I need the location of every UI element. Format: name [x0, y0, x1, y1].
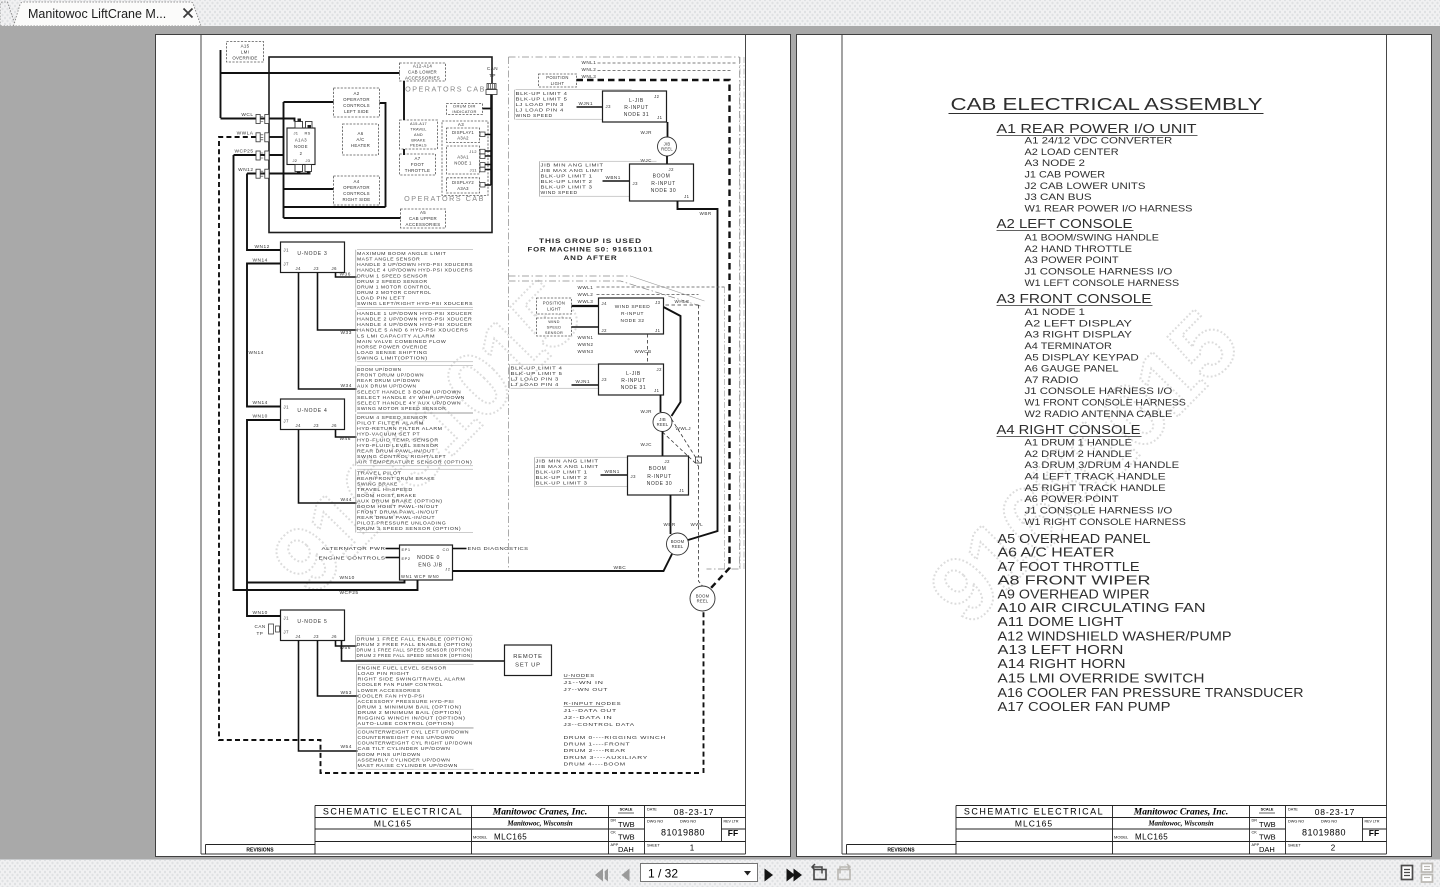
- svg-text:TRAVEL: TRAVEL: [410, 128, 426, 132]
- svg-text:MLC165: MLC165: [494, 833, 527, 842]
- svg-text:A5 RIGHT TRACK HANDLE: A5 RIGHT TRACK HANDLE: [1024, 482, 1165, 493]
- svg-text:CAB LOWER: CAB LOWER: [407, 70, 436, 75]
- svg-text:R-INPUT: R-INPUT: [621, 311, 644, 317]
- svg-text:J2: J2: [601, 328, 607, 333]
- svg-text:J6: J6: [331, 266, 337, 271]
- svg-text:08-23-17: 08-23-17: [1314, 807, 1354, 817]
- svg-text:WWL: WWL: [690, 522, 703, 527]
- svg-text:REEL: REEL: [696, 599, 708, 604]
- svg-text:FRONT DRUM PAWL-IN/OUT: FRONT DRUM PAWL-IN/OUT: [357, 510, 439, 515]
- svg-text:NODE 30: NODE 30: [646, 481, 672, 487]
- svg-text:WBR: WBR: [699, 211, 711, 216]
- svg-text:2: 2: [1330, 844, 1335, 853]
- svg-text:LOAD SENSE SHIFTING: LOAD SENSE SHIFTING: [357, 350, 428, 355]
- svg-text:SELECT HANDLE 4Y WHIP UP/DOWN: SELECT HANDLE 4Y WHIP UP/DOWN: [357, 395, 465, 400]
- svg-text:WJN1: WJN1: [578, 101, 593, 106]
- svg-text:AIR TEMPERATURE SENSOR (OPTION: AIR TEMPERATURE SENSOR (OPTION): [357, 460, 472, 465]
- svg-text:SCALE: SCALE: [619, 808, 632, 812]
- svg-text:Manitowoc LiftCrane M...: Manitowoc LiftCrane M...: [28, 7, 166, 21]
- svg-text:R-INPUT: R-INPUT: [651, 181, 675, 187]
- svg-text:JIB MAX ANG LIMIT: JIB MAX ANG LIMIT: [540, 168, 603, 173]
- svg-text:A8 FRONT WIPER: A8 FRONT WIPER: [997, 573, 1150, 587]
- svg-text:BOOM HOIST PAWL-IN/OUT: BOOM HOIST PAWL-IN/OUT: [357, 504, 439, 509]
- svg-text:J1: J1: [655, 328, 661, 333]
- svg-text:A15-A17: A15-A17: [410, 122, 427, 126]
- svg-text:ENG J/B: ENG J/B: [418, 563, 442, 569]
- svg-text:ENGINE CONTROLS: ENGINE CONTROLS: [318, 556, 385, 562]
- svg-text:J1 CONSOLE HARNESS I/O: J1 CONSOLE HARNESS I/O: [1024, 266, 1172, 277]
- svg-text:POSITION: POSITION: [542, 301, 564, 306]
- svg-text:CO: CO: [442, 547, 449, 552]
- svg-text:J1 CONSOLE HARNESS I/O: J1 CONSOLE HARNESS I/O: [1024, 505, 1172, 516]
- svg-text:W53: W53: [340, 690, 351, 696]
- svg-text:LEFT SIDE: LEFT SIDE: [344, 109, 369, 114]
- svg-text:A12-A14: A12-A14: [412, 64, 431, 69]
- svg-text:BLK-UP LIMIT 4: BLK-UP LIMIT 4: [515, 91, 567, 96]
- svg-text:OPERATOR: OPERATOR: [343, 97, 370, 102]
- svg-text:AND: AND: [414, 133, 423, 137]
- svg-text:J3: J3: [305, 158, 310, 163]
- svg-text:J4: J4: [295, 266, 301, 271]
- svg-text:BOOM HOIST BRAKE: BOOM HOIST BRAKE: [357, 493, 417, 498]
- svg-text:SCHEMATIC ELECTRICAL: SCHEMATIC ELECTRICAL: [322, 807, 462, 817]
- svg-text:A3A1: A3A1: [457, 155, 469, 160]
- svg-text:A3: A3: [457, 122, 463, 127]
- svg-text:WIND SPEED: WIND SPEED: [540, 190, 577, 195]
- svg-text:MAIN VALVE COMBINED FLOW: MAIN VALVE COMBINED FLOW: [357, 339, 447, 344]
- svg-text:2: 2: [299, 151, 302, 156]
- svg-text:TWB: TWB: [618, 820, 635, 829]
- svg-text:J2: J2: [664, 459, 670, 464]
- svg-text:CK: CK: [1251, 831, 1257, 835]
- svg-text:A3A3: A3A3: [457, 186, 469, 191]
- svg-text:J1: J1: [293, 131, 298, 136]
- svg-text:TP: TP: [489, 73, 496, 78]
- svg-text:A7 FOOT THROTTLE: A7 FOOT THROTTLE: [997, 560, 1139, 574]
- svg-text:PILOT PRESSURE UNLOADING: PILOT PRESSURE UNLOADING: [357, 521, 447, 526]
- svg-text:EP1: EP1: [401, 547, 410, 552]
- svg-text:WIND SPEED: WIND SPEED: [614, 304, 649, 310]
- svg-text:A5 OVERHEAD PANEL: A5 OVERHEAD PANEL: [997, 532, 1150, 546]
- svg-text:HANDLE 5 AND 6 HYD-PSI XDUCERS: HANDLE 5 AND 6 HYD-PSI XDUCERS: [357, 328, 469, 333]
- svg-text:DR: DR: [1251, 819, 1257, 823]
- svg-text:A7: A7: [414, 156, 420, 161]
- svg-text:A13 LEFT HORN: A13 LEFT HORN: [997, 643, 1123, 657]
- svg-text:CONTROLS: CONTROLS: [343, 103, 370, 108]
- svg-text:THROTTLE: THROTTLE: [404, 168, 430, 173]
- svg-text:BLK-UP LIMIT 4: BLK-UP LIMIT 4: [510, 365, 562, 370]
- svg-text:WN14: WN14: [248, 350, 263, 356]
- svg-text:J3: J3: [630, 474, 636, 479]
- svg-text:U-NODE 5: U-NODE 5: [297, 619, 327, 625]
- svg-text:A14 RIGHT HORN: A14 RIGHT HORN: [997, 657, 1125, 671]
- svg-text:A2 LOAD CENTER: A2 LOAD CENTER: [1024, 146, 1118, 157]
- svg-text:OPERATORS CAB: OPERATORS CAB: [405, 85, 486, 94]
- svg-text:LMI: LMI: [240, 49, 248, 54]
- svg-text:Manitowoc Cranes, Inc.: Manitowoc Cranes, Inc.: [1132, 808, 1228, 818]
- svg-text:W33: W33: [340, 330, 351, 336]
- svg-text:REVISIONS: REVISIONS: [887, 848, 915, 854]
- svg-text:SCALE: SCALE: [1260, 808, 1273, 812]
- svg-text:WJR: WJR: [640, 409, 652, 414]
- svg-text:A6 GAUGE PANEL: A6 GAUGE PANEL: [1024, 363, 1118, 374]
- svg-text:WN14: WN14: [252, 400, 267, 406]
- svg-text:BOOM: BOOM: [648, 466, 666, 472]
- svg-text:BLK-UP LIMIT 5: BLK-UP LIMIT 5: [515, 96, 567, 101]
- svg-text:J2: J2: [656, 367, 662, 372]
- svg-text:A11 DOME LIGHT: A11 DOME LIGHT: [997, 615, 1123, 629]
- svg-text:CAN: CAN: [486, 66, 497, 71]
- svg-text:MODEL: MODEL: [1114, 835, 1129, 840]
- svg-text:DISPLAY2: DISPLAY2: [451, 180, 473, 185]
- svg-text:A2 HAND THROTTLE: A2 HAND THROTTLE: [1024, 243, 1132, 254]
- svg-text:ASSEMBLY CYLINDER UP/DOWN: ASSEMBLY CYLINDER UP/DOWN: [357, 757, 450, 762]
- svg-text:J3--CONTROL DATA: J3--CONTROL DATA: [563, 722, 635, 727]
- svg-text:DRUM 1 FREE FALL ENABLE (OPTIO: DRUM 1 FREE FALL ENABLE (OPTION): [356, 637, 472, 642]
- svg-text:HYD-FLUID TEMP. SENSOR: HYD-FLUID TEMP. SENSOR: [357, 437, 439, 442]
- svg-text:A3 POWER POINT: A3 POWER POINT: [1024, 254, 1118, 265]
- svg-text:WBN1: WBN1: [604, 469, 619, 474]
- svg-text:A1 24/12 VDC CONVERTER: A1 24/12 VDC CONVERTER: [1024, 135, 1172, 146]
- svg-text:DRUM 3 SPEED SENSOR (OPTION): DRUM 3 SPEED SENSOR (OPTION): [357, 526, 461, 531]
- svg-text:DRUM 4----BOOM: DRUM 4----BOOM: [563, 761, 625, 766]
- svg-text:ACCESSORY PRESSURE HYD-PSI: ACCESSORY PRESSURE HYD-PSI: [357, 699, 454, 704]
- svg-text:AUTO-LUBE CONTROL (OPTION): AUTO-LUBE CONTROL (OPTION): [357, 721, 454, 726]
- svg-text:COUNTERWEIGHT CYL RIGHT UP/DOW: COUNTERWEIGHT CYL RIGHT UP/DOWN: [357, 741, 472, 746]
- svg-text:POSITION: POSITION: [546, 75, 568, 80]
- svg-text:WN10: WN10: [339, 575, 354, 581]
- svg-text:RIGHT SIDE: RIGHT SIDE: [342, 197, 370, 202]
- svg-text:REEL: REEL: [656, 422, 668, 427]
- svg-text:J1: J1: [283, 405, 289, 410]
- svg-text:ALTERNATOR PWR: ALTERNATOR PWR: [321, 546, 385, 552]
- svg-text:DRUM 0----RIGGING WINCH: DRUM 0----RIGGING WINCH: [563, 735, 665, 740]
- svg-text:DRUM 1----FRONT: DRUM 1----FRONT: [563, 742, 630, 747]
- svg-text:A2 DRUM 2 HANDLE: A2 DRUM 2 HANDLE: [1024, 448, 1132, 459]
- svg-text:DRUM 1 SPEED SENSOR: DRUM 1 SPEED SENSOR: [357, 273, 428, 278]
- svg-text:REV LTR: REV LTR: [1364, 820, 1379, 824]
- svg-text:A4 LEFT TRACK HANDLE: A4 LEFT TRACK HANDLE: [1024, 471, 1165, 482]
- svg-text:CAB ELECTRICAL ASSEMBLY: CAB ELECTRICAL ASSEMBLY: [950, 94, 1262, 114]
- svg-text:A5 DISPLAY KEYPAD: A5 DISPLAY KEYPAD: [1024, 351, 1138, 362]
- svg-text:WWN2: WWN2: [577, 342, 593, 347]
- svg-text:ENGINE FUEL LEVEL SENSOR: ENGINE FUEL LEVEL SENSOR: [357, 666, 446, 671]
- svg-text:MAST RAISE CYLINDER UP/DOWN: MAST RAISE CYLINDER UP/DOWN: [357, 763, 457, 768]
- svg-text:A10 AIR CIRCULATING FAN: A10 AIR CIRCULATING FAN: [997, 601, 1205, 615]
- svg-text:A6 POWER POINT: A6 POWER POINT: [1024, 493, 1118, 504]
- svg-text:Manitowoc, Wisconsin: Manitowoc, Wisconsin: [1147, 820, 1213, 828]
- svg-text:A/C: A/C: [356, 137, 364, 142]
- svg-text:A16 COOLER FAN PRESSURE TRANSD: A16 COOLER FAN PRESSURE TRANSDUCER: [997, 686, 1303, 700]
- svg-text:BLK-UP LIMIT 5: BLK-UP LIMIT 5: [510, 371, 562, 376]
- svg-text:BOOM: BOOM: [652, 174, 670, 180]
- svg-text:AND AFTER: AND AFTER: [563, 255, 617, 262]
- svg-text:SWING CONTROL RIGHT/LEFT: SWING CONTROL RIGHT/LEFT: [357, 454, 446, 459]
- svg-text:ACCESSORIES: ACCESSORIES: [405, 222, 440, 227]
- svg-text:RS: RS: [304, 131, 310, 136]
- svg-text:NODE 31: NODE 31: [623, 112, 649, 118]
- svg-text:DRUM 2----REAR: DRUM 2----REAR: [563, 748, 626, 753]
- svg-text:SWING MOTOR SPEED SENSOR: SWING MOTOR SPEED SENSOR: [357, 406, 446, 411]
- svg-text:J1: J1: [657, 115, 663, 120]
- svg-text:J3: J3: [632, 181, 638, 186]
- svg-text:TWB: TWB: [618, 833, 635, 842]
- svg-text:WN10: WN10: [252, 414, 267, 420]
- svg-text:WNL2: WNL2: [581, 67, 596, 72]
- svg-text:A3 RIGHT DISPLAY: A3 RIGHT DISPLAY: [1024, 329, 1132, 340]
- svg-text:W1 FRONT CONSOLE HARNESS: W1 FRONT CONSOLE HARNESS: [1024, 397, 1185, 408]
- svg-text:SPEED: SPEED: [546, 324, 561, 329]
- svg-text:J3: J3: [313, 634, 319, 639]
- svg-text:WIND SPEED: WIND SPEED: [515, 113, 552, 118]
- svg-text:J3: J3: [605, 104, 611, 109]
- svg-text:PEDALS: PEDALS: [410, 144, 427, 148]
- svg-text:MODEL: MODEL: [473, 835, 488, 840]
- svg-text:A1 NODE 1: A1 NODE 1: [1024, 306, 1085, 317]
- svg-text:TRAVEL PILOT: TRAVEL PILOT: [357, 471, 402, 476]
- svg-text:1 / 32: 1 / 32: [648, 867, 678, 881]
- svg-text:HANDLE 3 UP/DOWN HYD-PSI XDUCE: HANDLE 3 UP/DOWN HYD-PSI XDUCERS: [357, 262, 473, 267]
- svg-text:DRUM DIR: DRUM DIR: [453, 104, 475, 109]
- svg-text:FRONT DRUM UP/DOWN: FRONT DRUM UP/DOWN: [357, 373, 424, 378]
- svg-text:A3 DRUM 3/DRUM 4 HANDLE: A3 DRUM 3/DRUM 4 HANDLE: [1024, 459, 1179, 470]
- svg-text:WCP25: WCP25: [339, 590, 358, 596]
- svg-text:J4: J4: [295, 423, 301, 428]
- svg-text:SENSOR: SENSOR: [544, 330, 562, 335]
- svg-text:DWG NO: DWG NO: [1288, 820, 1304, 824]
- svg-text:ENG DIAGNOSTICS: ENG DIAGNOSTICS: [467, 546, 528, 552]
- svg-text:RIGGING WINCH IN/OUT (OPTION): RIGGING WINCH IN/OUT (OPTION): [357, 716, 465, 721]
- svg-text:JIB MAX ANG LIMIT: JIB MAX ANG LIMIT: [535, 464, 598, 469]
- svg-text:JIB MIN ANG LIMIT: JIB MIN ANG LIMIT: [535, 458, 598, 463]
- svg-text:WWLA: WWLA: [236, 131, 253, 137]
- svg-text:HANDLE 1 UP/DOWN HYD-PSI XDUCE: HANDLE 1 UP/DOWN HYD-PSI XDUCER: [357, 311, 472, 316]
- svg-text:BLK-UP LIMIT 2: BLK-UP LIMIT 2: [535, 475, 587, 480]
- svg-text:DWG NO: DWG NO: [680, 820, 696, 824]
- svg-text:A9 OVERHEAD WIPER: A9 OVERHEAD WIPER: [997, 588, 1149, 602]
- svg-text:REEL: REEL: [671, 544, 683, 549]
- svg-text:CONTROLS: CONTROLS: [343, 191, 370, 196]
- svg-text:AUX DRUM UP/DOWN: AUX DRUM UP/DOWN: [357, 384, 417, 389]
- svg-text:DRUM 2 SPEED SENSOR: DRUM 2 SPEED SENSOR: [357, 279, 428, 284]
- svg-text:J3: J3: [313, 266, 319, 271]
- svg-text:FF: FF: [727, 828, 737, 838]
- svg-text:REAR/FRONT DRUM BRAKE: REAR/FRONT DRUM BRAKE: [357, 476, 435, 481]
- svg-text:CAB TILT CYLINDER UP/DOWN: CAB TILT CYLINDER UP/DOWN: [357, 746, 450, 751]
- svg-text:J3: J3: [601, 377, 607, 382]
- svg-text:WNL3: WNL3: [581, 74, 596, 79]
- svg-text:LIGHT: LIGHT: [550, 81, 564, 86]
- svg-text:SCHEMATIC ELECTRICAL: SCHEMATIC ELECTRICAL: [963, 807, 1103, 817]
- svg-text:LS LMI CAPACITY ALARM: LS LMI CAPACITY ALARM: [357, 333, 435, 338]
- svg-text:CK: CK: [610, 831, 616, 835]
- svg-text:WHLE: WHLE: [674, 299, 689, 304]
- svg-text:REAR DRUM UP/DOWN: REAR DRUM UP/DOWN: [357, 378, 420, 383]
- svg-text:FOR MACHINE S0: 91651101: FOR MACHINE S0: 91651101: [527, 247, 653, 254]
- svg-text:FF: FF: [1368, 828, 1378, 838]
- svg-text:DRUM 1 FREE FALL SPEED SENSOR: DRUM 1 FREE FALL SPEED SENSOR (OPTION): [356, 648, 472, 653]
- svg-text:RIGHT SIDE SWING/TRAVEL ALARM: RIGHT SIDE SWING/TRAVEL ALARM: [357, 677, 465, 682]
- svg-text:A15 LMI OVERRIDE SWITCH: A15 LMI OVERRIDE SWITCH: [997, 672, 1204, 686]
- svg-text:08-23-17: 08-23-17: [673, 807, 713, 817]
- svg-text:WWL2: WWL2: [577, 292, 593, 297]
- svg-text:J6: J6: [331, 423, 337, 428]
- svg-text:COUNTERWEIGHT CYL LEFT UP/DOWN: COUNTERWEIGHT CYL LEFT UP/DOWN: [357, 730, 469, 735]
- svg-text:FOOT: FOOT: [410, 162, 423, 167]
- svg-text:NODE: NODE: [293, 144, 307, 149]
- svg-text:EP2: EP2: [401, 556, 410, 561]
- svg-text:J3: J3: [313, 423, 319, 428]
- svg-text:WBN1: WBN1: [605, 175, 620, 180]
- svg-text:A7 RADIO: A7 RADIO: [1024, 374, 1078, 385]
- svg-text:WWL3: WWL3: [577, 299, 593, 304]
- svg-text:A2 LEFT DISPLAY: A2 LEFT DISPLAY: [1024, 317, 1133, 328]
- svg-text:WWL1: WWL1: [577, 285, 593, 290]
- svg-text:WJC: WJC: [640, 158, 652, 163]
- svg-text:J12: J12: [469, 150, 477, 154]
- svg-text:DRUM 2 FREE FALL SPEED SENSOR: DRUM 2 FREE FALL SPEED SENSOR (OPTION): [356, 653, 472, 658]
- svg-text:WNL1: WNL1: [581, 60, 596, 65]
- svg-text:BOOM UP/DOWN: BOOM UP/DOWN: [357, 367, 402, 372]
- svg-text:W1 RIGHT CONSOLE HARNESS: W1 RIGHT CONSOLE HARNESS: [1024, 516, 1185, 527]
- svg-text:REVISIONS: REVISIONS: [246, 848, 274, 854]
- svg-text:J11: J11: [469, 169, 476, 173]
- svg-text:A1 DRUM 1 HANDLE: A1 DRUM 1 HANDLE: [1024, 437, 1132, 448]
- svg-text:J1 CAB POWER: J1 CAB POWER: [1024, 169, 1105, 180]
- svg-text:NODE 30: NODE 30: [650, 188, 676, 194]
- svg-text:HYD-RETURN FILTER ALARM: HYD-RETURN FILTER ALARM: [357, 426, 443, 431]
- svg-text:HEATER: HEATER: [350, 143, 369, 148]
- svg-text:REEL: REEL: [661, 147, 673, 152]
- svg-text:DR: DR: [610, 819, 616, 823]
- svg-text:MLC165: MLC165: [373, 819, 411, 829]
- svg-text:J7: J7: [283, 419, 289, 424]
- svg-text:A17 COOLER FAN PUMP: A17 COOLER FAN PUMP: [997, 700, 1170, 714]
- svg-text:HYD-FLUID LEVEL SENSOR: HYD-FLUID LEVEL SENSOR: [357, 443, 439, 448]
- svg-text:J1--DATA OUT: J1--DATA OUT: [563, 708, 616, 713]
- svg-text:A6: A6: [357, 131, 363, 136]
- svg-text:A4 RIGHT CONSOLE: A4 RIGHT CONSOLE: [996, 423, 1140, 437]
- svg-text:CAN: CAN: [254, 624, 265, 629]
- svg-text:A12 WINDSHIELD WASHER/PUMP: A12 WINDSHIELD WASHER/PUMP: [997, 629, 1231, 643]
- svg-text:LIGHT: LIGHT: [547, 306, 561, 311]
- svg-text:J4: J4: [295, 634, 301, 639]
- svg-text:LJ LOAD PIN 4: LJ LOAD PIN 4: [510, 382, 559, 387]
- svg-text:A15: A15: [240, 43, 249, 48]
- svg-text:SELECT HANDLE 3 BOOM UP/DOWN: SELECT HANDLE 3 BOOM UP/DOWN: [357, 389, 461, 394]
- svg-text:J1--WN IN: J1--WN IN: [563, 680, 603, 685]
- svg-text:WIND: WIND: [548, 319, 560, 324]
- svg-text:DATE: DATE: [647, 808, 657, 812]
- svg-text:LOAD PIN LEFT: LOAD PIN LEFT: [357, 296, 405, 301]
- svg-text:PILOT FILTER ALARM: PILOT FILTER ALARM: [357, 421, 424, 426]
- svg-text:W1 LEFT CONSOLE HARNESS: W1 LEFT CONSOLE HARNESS: [1024, 277, 1179, 288]
- svg-text:SWING LEFT/RIGHT HYD-PSI XDUCE: SWING LEFT/RIGHT HYD-PSI XDUCERS: [357, 301, 473, 306]
- svg-text:WBR: WBR: [663, 522, 675, 527]
- svg-text:J7--WN OUT: J7--WN OUT: [563, 687, 608, 692]
- svg-text:J2: J2: [668, 167, 674, 172]
- svg-text:W34: W34: [340, 383, 351, 389]
- svg-text:J2: J2: [445, 567, 451, 572]
- svg-text:WWLJ: WWLJ: [675, 426, 691, 431]
- svg-text:MAXIMUM BOOM ANGLE LIMIT: MAXIMUM BOOM ANGLE LIMIT: [357, 251, 446, 256]
- svg-text:DRUM 2 MINIMUM BAIL (OPTION): DRUM 2 MINIMUM BAIL (OPTION): [357, 710, 461, 715]
- svg-text:1: 1: [689, 844, 694, 853]
- svg-text:BOOM PINS UP/DOWN: BOOM PINS UP/DOWN: [357, 752, 420, 757]
- svg-text:BRAKE: BRAKE: [411, 138, 426, 142]
- svg-text:W2 RADIO ANTENNA CABLE: W2 RADIO ANTENNA CABLE: [1024, 408, 1172, 419]
- svg-text:W36: W36: [339, 272, 350, 278]
- svg-text:MAST ANGLE SENSOR: MAST ANGLE SENSOR: [357, 257, 420, 262]
- svg-text:WBC: WBC: [613, 565, 626, 571]
- svg-text:JIB MIN ANG LIMIT: JIB MIN ANG LIMIT: [540, 162, 603, 167]
- svg-text:LJ LOAD PIN 3: LJ LOAD PIN 3: [510, 376, 559, 381]
- svg-text:WWN1: WWN1: [577, 335, 593, 340]
- svg-text:R-INPUT: R-INPUT: [624, 105, 648, 111]
- svg-text:THIS GROUP IS USED: THIS GROUP IS USED: [539, 238, 642, 245]
- svg-text:TP: TP: [256, 631, 263, 636]
- svg-text:HANDLE 4 UP/DOWN HYD-PSI XDUCE: HANDLE 4 UP/DOWN HYD-PSI XDUCER: [357, 322, 472, 327]
- svg-text:A3A2: A3A2: [457, 136, 469, 141]
- svg-text:DRUM 2 FREE FALL ENABLE (OPTIO: DRUM 2 FREE FALL ENABLE (OPTION): [356, 642, 472, 647]
- svg-text:U-NODE 4: U-NODE 4: [297, 408, 327, 414]
- svg-text:J1: J1: [283, 616, 289, 621]
- svg-text:J1: J1: [654, 388, 660, 393]
- svg-text:COOLER FAN PUMP CONTROL: COOLER FAN PUMP CONTROL: [357, 682, 443, 687]
- svg-text:BLK-UP LIMIT 3: BLK-UP LIMIT 3: [540, 184, 592, 189]
- svg-text:REV LTR: REV LTR: [723, 820, 738, 824]
- svg-text:DISPLAY1: DISPLAY1: [451, 130, 473, 135]
- svg-text:J1: J1: [684, 194, 690, 199]
- svg-text:LJ LOAD PIN 3: LJ LOAD PIN 3: [515, 102, 564, 107]
- svg-text:WN12: WN12: [254, 244, 269, 250]
- svg-text:WJN1: WJN1: [575, 379, 590, 384]
- svg-text:SET UP: SET UP: [515, 663, 541, 669]
- svg-text:A4 TERMINATOR: A4 TERMINATOR: [1024, 340, 1112, 351]
- svg-text:DRUM 1 MINIMUM BAIL (OPTION): DRUM 1 MINIMUM BAIL (OPTION): [357, 705, 461, 710]
- svg-text:R-INPUT: R-INPUT: [621, 378, 645, 384]
- svg-text:J7: J7: [283, 262, 289, 267]
- svg-text:J2 CAB LOWER UNITS: J2 CAB LOWER UNITS: [1024, 180, 1145, 191]
- svg-text:A2: A2: [353, 91, 359, 96]
- svg-text:J1: J1: [283, 248, 289, 253]
- svg-text:INDICATOR: INDICATOR: [452, 109, 476, 114]
- svg-text:TWB: TWB: [1259, 833, 1276, 842]
- svg-text:LJ LOAD PIN 4: LJ LOAD PIN 4: [515, 107, 564, 112]
- svg-text:HANDLE 4 UP/DOWN HYD-PSI XDUCE: HANDLE 4 UP/DOWN HYD-PSI XDUCERS: [357, 268, 473, 273]
- svg-text:WN12: WN12: [238, 167, 253, 173]
- svg-text:A6 A/C HEATER: A6 A/C HEATER: [997, 546, 1114, 560]
- svg-text:OVERRIDE: OVERRIDE: [232, 55, 257, 60]
- svg-text:NODE 1: NODE 1: [454, 160, 472, 165]
- svg-text:BLK-UP LIMIT 1: BLK-UP LIMIT 1: [535, 469, 587, 474]
- svg-text:A1 BOOM/SWING HANDLE: A1 BOOM/SWING HANDLE: [1024, 232, 1158, 243]
- svg-text:W44: W44: [340, 497, 351, 503]
- svg-text:WCL: WCL: [241, 112, 253, 118]
- svg-text:A2 LEFT CONSOLE: A2 LEFT CONSOLE: [996, 217, 1132, 231]
- svg-text:BLK-UP LIMIT 1: BLK-UP LIMIT 1: [540, 173, 592, 178]
- svg-text:TRAVEL HI-SPEED: TRAVEL HI-SPEED: [357, 487, 413, 492]
- svg-text:J4: J4: [601, 301, 607, 306]
- svg-text:COOLER FAN HYD-PSI: COOLER FAN HYD-PSI: [357, 693, 424, 698]
- svg-text:J2--DATA IN: J2--DATA IN: [563, 715, 612, 720]
- svg-text:SHEET: SHEET: [1288, 844, 1301, 848]
- svg-text:A4: A4: [353, 179, 359, 184]
- svg-text:W1 REAR POWER I/O HARNESS: W1 REAR POWER I/O HARNESS: [1024, 202, 1192, 213]
- svg-text:HANDLE 2 UP/DOWN HYD-PSI XDUCE: HANDLE 2 UP/DOWN HYD-PSI XDUCER: [357, 317, 472, 322]
- svg-text:J3 CAN BUS: J3 CAN BUS: [1024, 191, 1091, 202]
- svg-text:REMOTE: REMOTE: [513, 654, 543, 660]
